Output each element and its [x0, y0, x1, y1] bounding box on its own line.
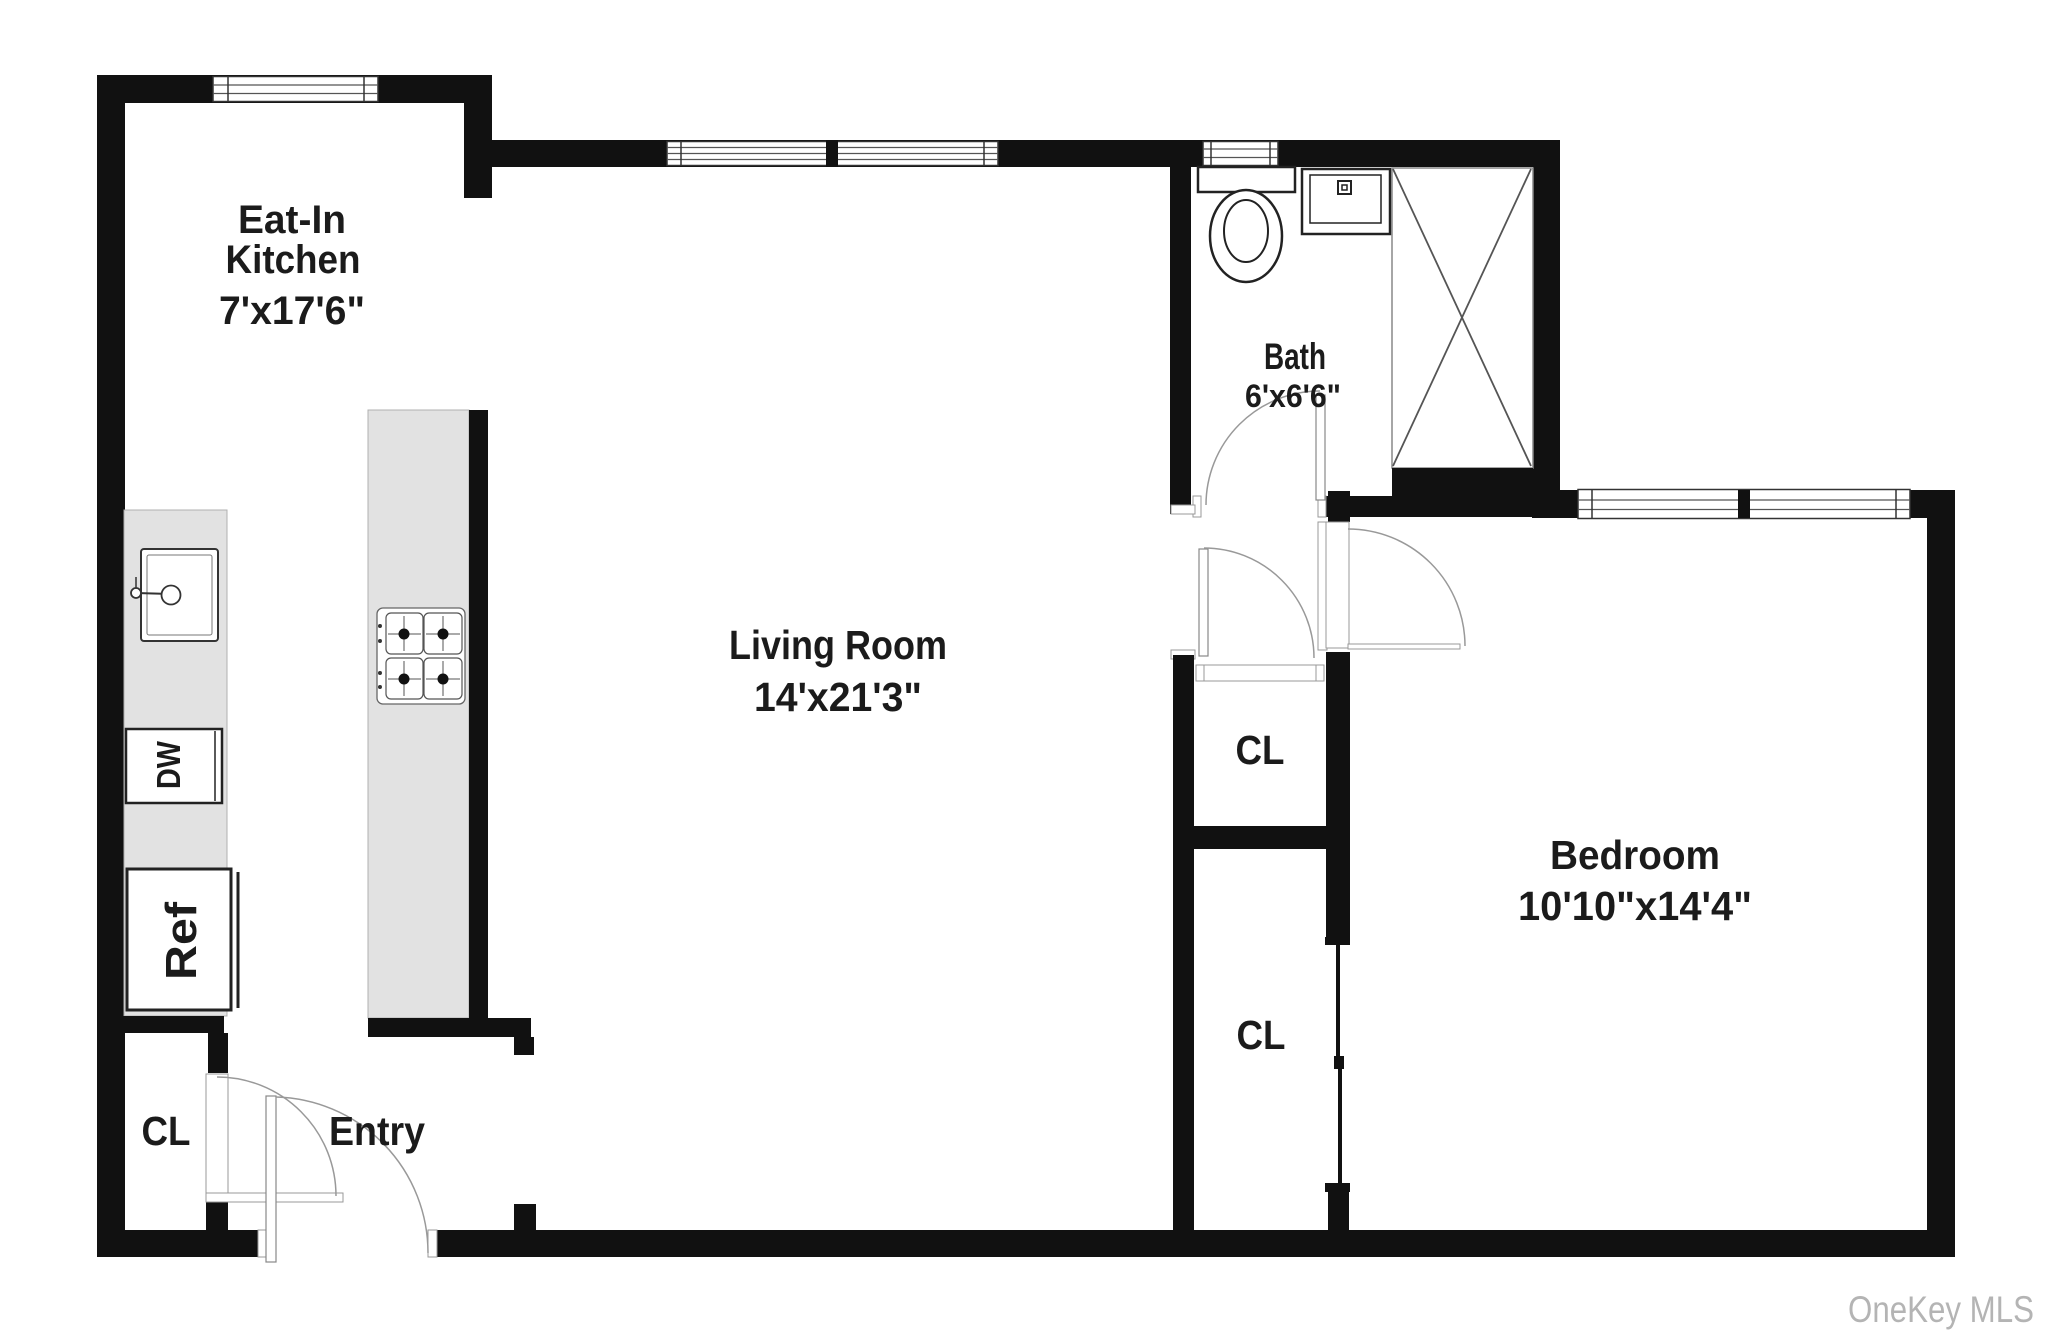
- svg-text:6'x6'6": 6'x6'6": [1245, 378, 1341, 414]
- svg-text:CL: CL: [1237, 1012, 1286, 1058]
- svg-text:Entry: Entry: [329, 1108, 425, 1154]
- svg-text:Eat-In: Eat-In: [238, 198, 346, 242]
- svg-text:OneKey MLS: OneKey MLS: [1848, 1289, 2034, 1330]
- svg-text:10'10"x14'4": 10'10"x14'4": [1518, 883, 1752, 929]
- svg-text:Bath: Bath: [1264, 336, 1326, 377]
- svg-text:Bedroom: Bedroom: [1550, 832, 1720, 878]
- svg-text:Ref: Ref: [157, 902, 206, 980]
- svg-text:CL: CL: [142, 1108, 191, 1154]
- svg-text:Living Room: Living Room: [729, 622, 947, 668]
- svg-text:DW: DW: [150, 740, 187, 789]
- svg-text:CL: CL: [1236, 727, 1285, 773]
- svg-text:14'x21'3": 14'x21'3": [754, 674, 922, 720]
- svg-text:7'x17'6": 7'x17'6": [219, 289, 365, 333]
- svg-text:Kitchen: Kitchen: [226, 238, 361, 282]
